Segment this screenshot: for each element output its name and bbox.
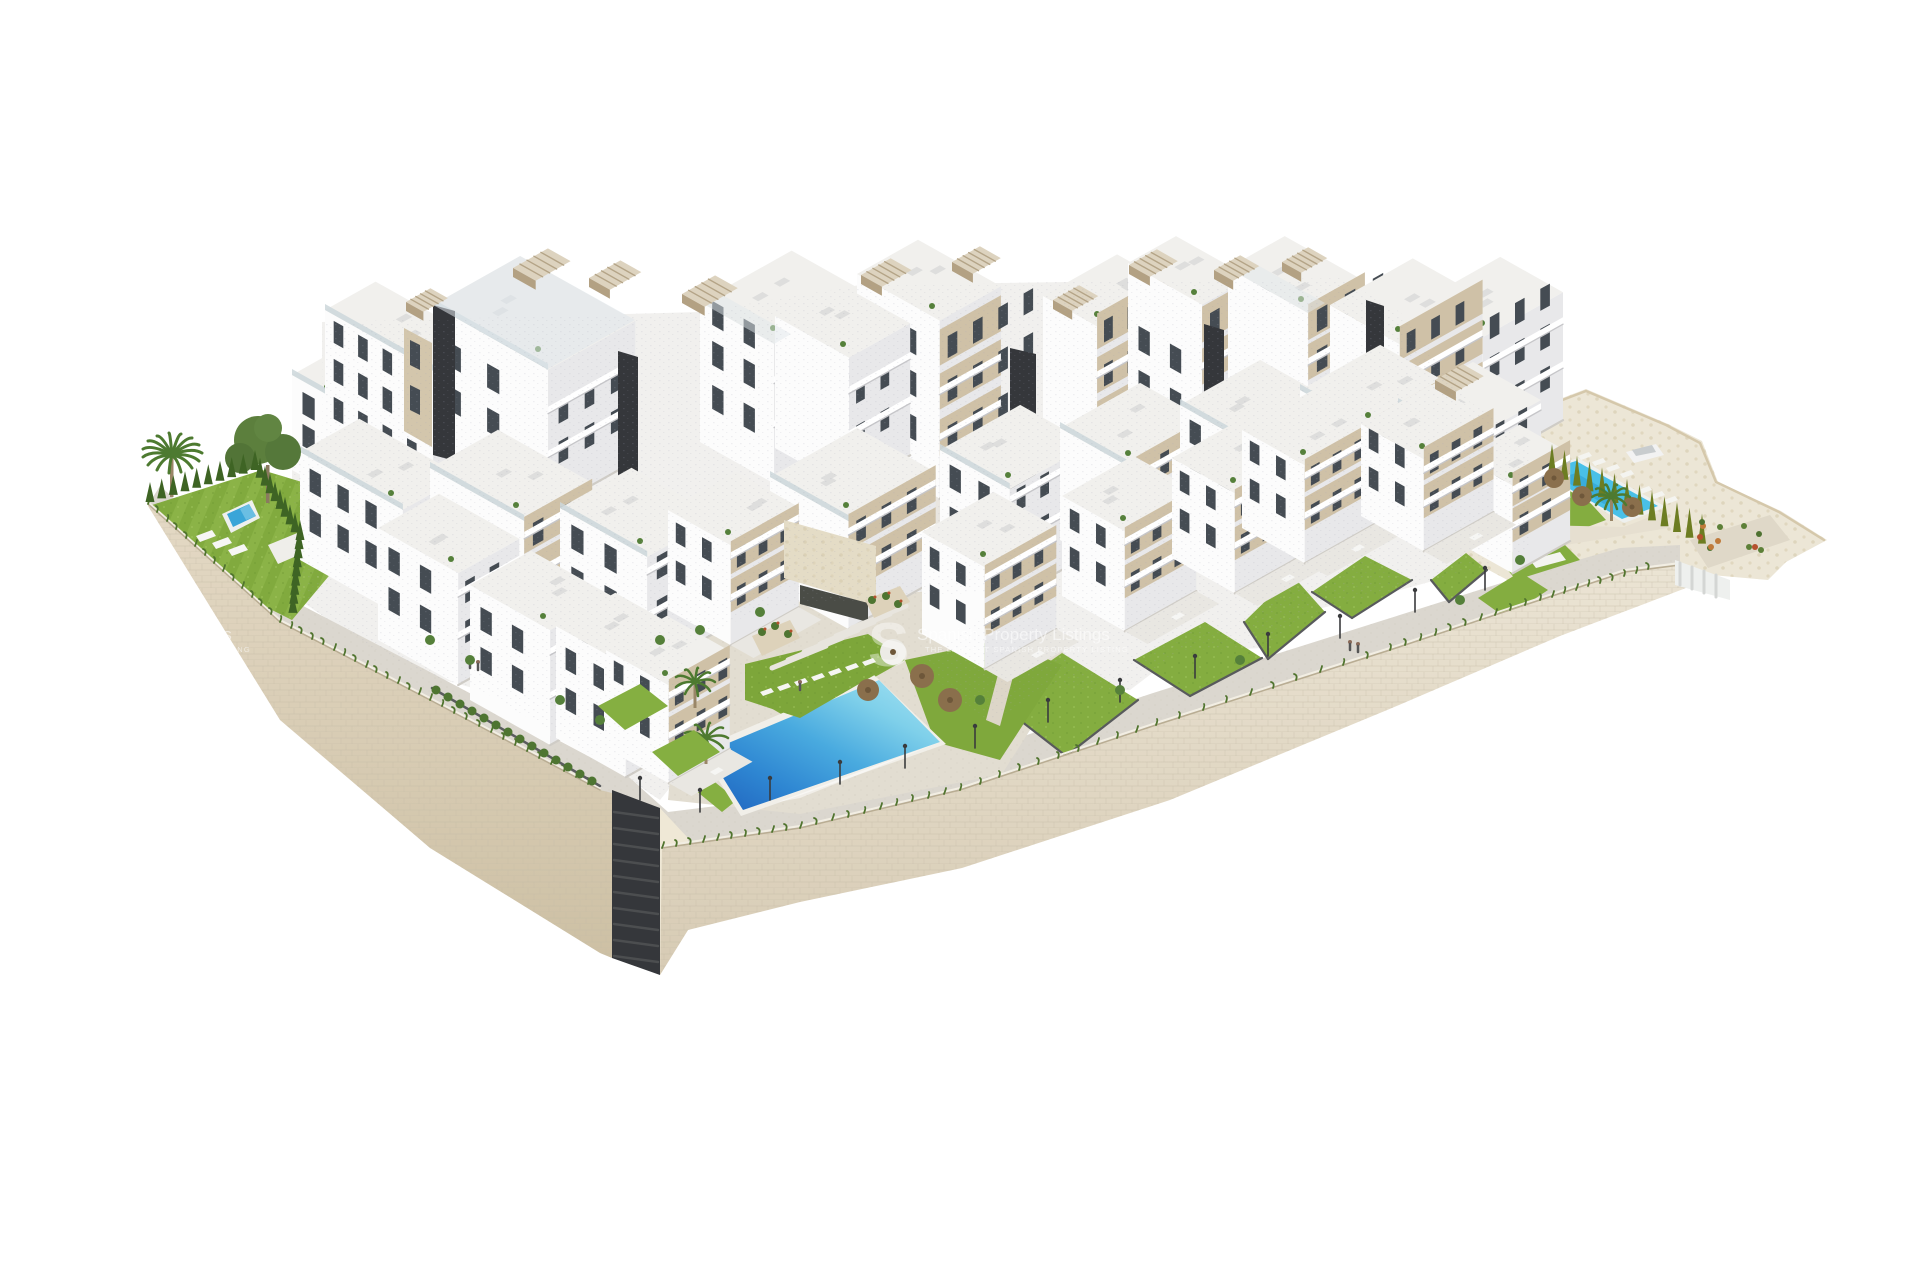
svg-text:Spanish Property Listings: Spanish Property Listings bbox=[39, 625, 232, 644]
svg-text:THE LARGEST SPANISH PROPERTY L: THE LARGEST SPANISH PROPERTY LISTING bbox=[47, 645, 251, 654]
svg-text:THE LARGEST SPANISH PROPERTY L: THE LARGEST SPANISH PROPERTY LISTING bbox=[925, 645, 1129, 654]
svg-text:Spanish Property Listings: Spanish Property Listings bbox=[917, 625, 1110, 644]
svg-text:S: S bbox=[0, 611, 31, 680]
svg-text:S: S bbox=[868, 611, 909, 680]
